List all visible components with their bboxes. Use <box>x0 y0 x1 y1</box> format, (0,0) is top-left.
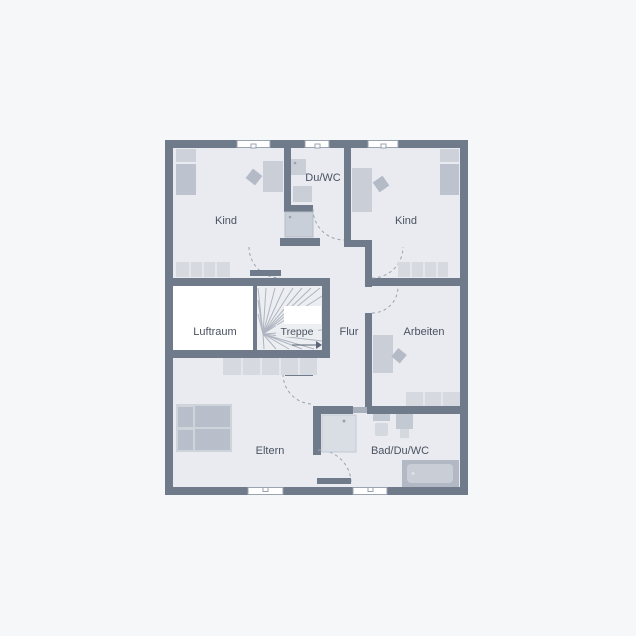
wall-bad-top-left <box>321 406 353 414</box>
window-top-2-tick <box>315 144 320 148</box>
door-leaf-bad-eltern <box>317 478 351 484</box>
room-label-kind-left: Kind <box>215 215 237 227</box>
wall-eltern-bad <box>313 406 321 455</box>
wall-flur-arbeiten-lower <box>365 313 372 413</box>
bed-mattress <box>195 406 230 427</box>
staircase: Treppe <box>257 286 322 350</box>
desk <box>263 161 283 192</box>
wall-kindright-arbeiten <box>365 278 460 286</box>
shower <box>322 415 356 452</box>
wall-kindleft-duwc <box>284 148 291 207</box>
shower <box>285 212 313 237</box>
bed-body <box>176 164 196 195</box>
bathtub-faucet-icon <box>412 472 415 475</box>
double-bed <box>176 404 232 452</box>
bed-pillow <box>440 149 459 162</box>
window-bottom-2-tick <box>368 488 373 492</box>
wc <box>373 414 390 436</box>
wall-above-luftraum-stairs <box>173 278 330 286</box>
bed-pillow <box>178 430 193 450</box>
wall-stairs-flur <box>322 278 330 357</box>
bathtub <box>402 460 459 487</box>
sink <box>291 159 306 175</box>
bed-pillow <box>176 149 196 162</box>
wall-duwc-kindright <box>344 148 351 247</box>
door-leaf-bad-flur <box>353 407 367 413</box>
sideboard <box>223 358 317 375</box>
bed-mattress <box>195 429 230 450</box>
desk <box>373 335 393 373</box>
room-label-du-wc: Du/WC <box>305 172 341 184</box>
desk <box>352 168 372 212</box>
room-label-bad: Bad/Du/WC <box>371 445 429 457</box>
shower-drain-icon <box>289 216 292 219</box>
room-label-flur: Flur <box>340 326 359 338</box>
room-label-treppe: Treppe <box>281 326 314 338</box>
outer-wall-left <box>165 140 173 495</box>
wc <box>293 186 312 202</box>
floorplan-drawing: Treppe Kind <box>0 0 636 636</box>
window-bottom-1-tick <box>263 488 268 492</box>
door-leaf-kind-left <box>250 270 281 276</box>
outer-wall-right <box>460 140 468 495</box>
wall-below-luftraum-stairs <box>173 350 330 358</box>
room-label-arbeiten: Arbeiten <box>404 326 445 338</box>
window-top-3-tick <box>381 144 386 148</box>
luftraum-void <box>173 286 253 350</box>
shower-drain-icon <box>343 420 346 423</box>
outer-wall-bottom <box>165 487 468 495</box>
wardrobe <box>176 262 230 277</box>
bed-body <box>440 164 459 195</box>
wall-bad-top-right <box>367 406 460 414</box>
room-label-eltern: Eltern <box>256 445 285 457</box>
floorplan-page: Treppe Kind <box>0 0 636 636</box>
room-label-luftraum: Luftraum <box>193 326 236 338</box>
sink-drain-icon <box>294 162 297 165</box>
stairs-landing <box>284 306 321 324</box>
wall-luftraum-stairs-divider <box>253 286 257 350</box>
room-label-kind-right: Kind <box>395 215 417 227</box>
window-top-1-tick <box>251 144 256 148</box>
wardrobe <box>398 262 448 277</box>
wall-duwc-bottom-left <box>284 205 313 212</box>
bed-pillow <box>178 407 193 427</box>
wall-below-duwc-shower <box>280 238 320 246</box>
sideboard <box>406 392 460 406</box>
